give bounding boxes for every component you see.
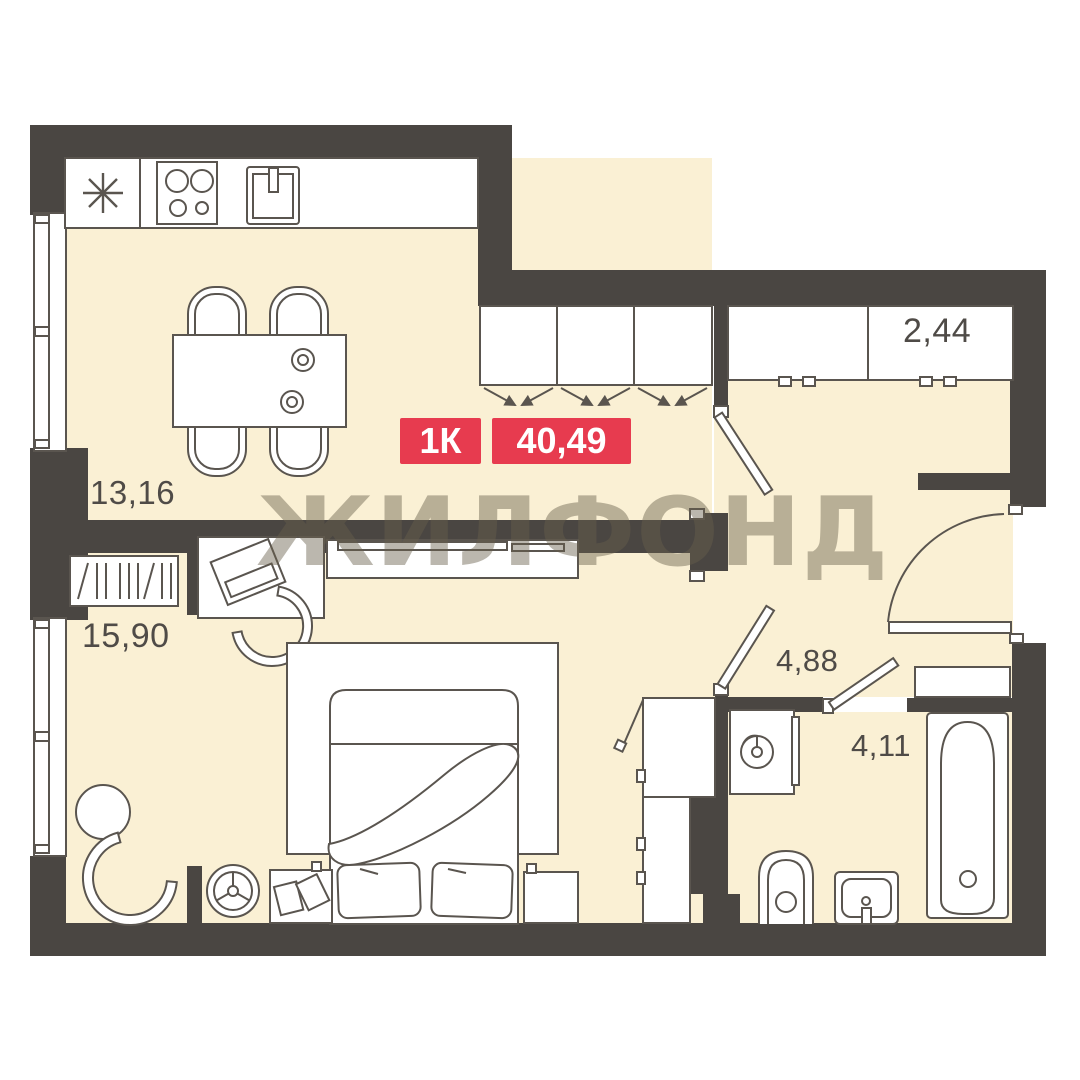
area-label-bathroom: 4,11 (851, 728, 911, 764)
fan-stool (207, 865, 259, 917)
hall-shelf (915, 667, 1010, 697)
side-table (76, 785, 130, 839)
apartment-badge: 1К 40,49 (400, 418, 631, 464)
watermark: ЖИЛФОНД (256, 478, 889, 588)
bathtub (927, 713, 1008, 918)
area-label-hallway: 4,88 (776, 643, 838, 679)
fridge-icon (83, 173, 123, 213)
area-label-kitchen-living: 13,16 (90, 474, 175, 512)
entrance-door (888, 505, 1023, 643)
window-bedroom (34, 618, 66, 856)
window-kitchen (34, 213, 66, 451)
dining-table (173, 335, 346, 427)
floor-plan: 13,16 15,90 2,44 4,88 4,11 1К 40,49 ЖИЛФ… (0, 0, 1080, 1080)
area-label-bedroom: 15,90 (82, 617, 170, 656)
washing-machine (730, 710, 799, 794)
kitchen-wardrobe (480, 306, 712, 405)
armchair (83, 833, 177, 925)
toilet (759, 851, 813, 924)
bathroom-sink (835, 872, 898, 924)
bed (329, 690, 519, 924)
total-area-badge: 40,49 (492, 418, 631, 464)
bedroom-wardrobe (70, 556, 178, 606)
room-type-badge: 1К (400, 418, 481, 464)
nightstand-book (270, 862, 332, 923)
kitchen-sink-icon (247, 167, 299, 224)
area-label-wardrobe-niche: 2,44 (903, 312, 971, 351)
nightstand-right (524, 864, 578, 923)
stove-icon (157, 162, 217, 224)
hall-column-wardrobe (637, 698, 715, 923)
